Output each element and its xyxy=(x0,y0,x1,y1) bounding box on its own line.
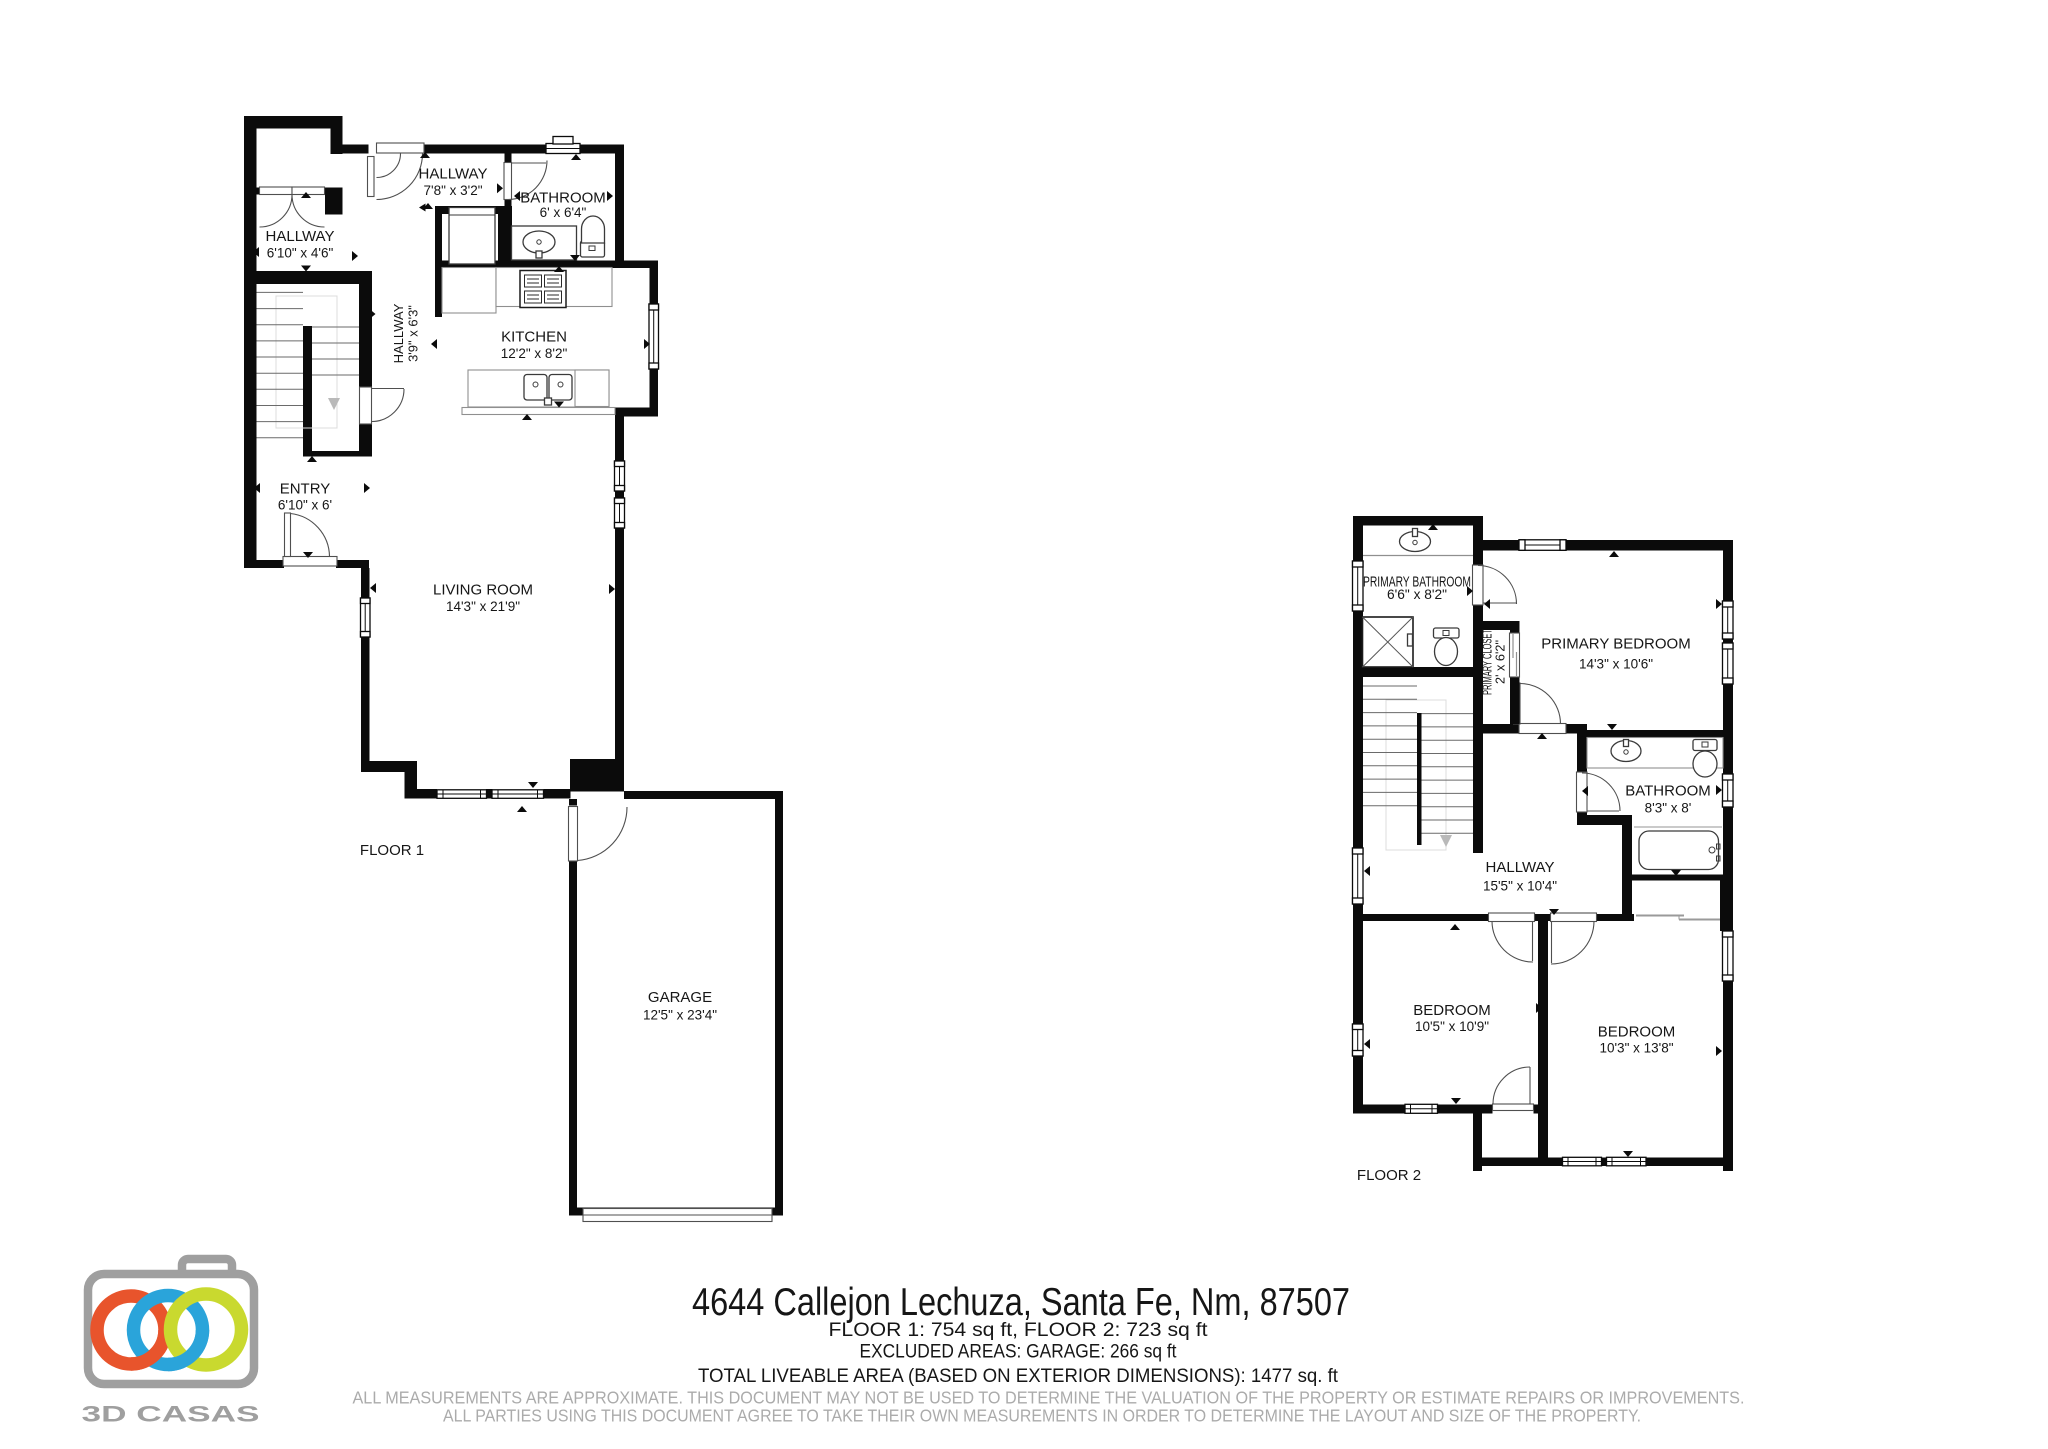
svg-text:BEDROOM: BEDROOM xyxy=(1598,1024,1676,1041)
svg-text:3'9" x 6'3": 3'9" x 6'3" xyxy=(406,305,421,362)
svg-text:FLOOR 1: 754 sq ft, FLOOR 2: 7: FLOOR 1: 754 sq ft, FLOOR 2: 723 sq ft xyxy=(829,1320,1209,1341)
svg-text:BEDROOM: BEDROOM xyxy=(1413,1002,1491,1019)
svg-text:PRIMARY BEDROOM: PRIMARY BEDROOM xyxy=(1541,636,1690,653)
svg-text:15'5" x 10'4": 15'5" x 10'4" xyxy=(1483,879,1557,894)
svg-text:BATHROOM: BATHROOM xyxy=(1625,783,1711,800)
svg-text:HALLWAY: HALLWAY xyxy=(266,228,335,245)
svg-text:GARAGE: GARAGE xyxy=(648,989,712,1006)
svg-text:ENTRY: ENTRY xyxy=(280,481,331,498)
svg-text:ALL PARTIES USING THIS DOCUMEN: ALL PARTIES USING THIS DOCUMENT AGREE TO… xyxy=(443,1406,1641,1426)
svg-text:6'6" x 8'2": 6'6" x 8'2" xyxy=(1387,587,1447,602)
svg-text:10'5" x 10'9": 10'5" x 10'9" xyxy=(1415,1019,1489,1034)
svg-text:2' x 6'2": 2' x 6'2" xyxy=(1493,640,1508,684)
svg-text:FLOOR 1: FLOOR 1 xyxy=(360,842,424,859)
svg-text:12'2" x 8'2": 12'2" x 8'2" xyxy=(501,346,568,361)
svg-text:ALL MEASUREMENTS ARE APPROXIMA: ALL MEASUREMENTS ARE APPROXIMATE. THIS D… xyxy=(353,1388,1745,1408)
svg-text:6'10" x 4'6": 6'10" x 4'6" xyxy=(267,246,334,261)
svg-text:4644 Callejon Lechuza, Santa F: 4644 Callejon Lechuza, Santa Fe, Nm, 875… xyxy=(692,1281,1350,1324)
svg-text:EXCLUDED AREAS: GARAGE: 266 sq: EXCLUDED AREAS: GARAGE: 266 sq ft xyxy=(860,1342,1178,1363)
svg-text:KITCHEN: KITCHEN xyxy=(501,329,567,346)
svg-text:6'10" x 6': 6'10" x 6' xyxy=(278,498,332,513)
svg-text:14'3" x 10'6": 14'3" x 10'6" xyxy=(1579,657,1653,672)
svg-text:6' x 6'4": 6' x 6'4" xyxy=(540,205,587,220)
svg-text:BATHROOM: BATHROOM xyxy=(520,190,606,207)
svg-text:FLOOR 2: FLOOR 2 xyxy=(1357,1167,1421,1184)
svg-text:TOTAL LIVEABLE AREA (BASED ON: TOTAL LIVEABLE AREA (BASED ON EXTERIOR D… xyxy=(698,1366,1339,1387)
svg-text:12'5" x 23'4": 12'5" x 23'4" xyxy=(643,1008,717,1023)
svg-text:7'8" x 3'2": 7'8" x 3'2" xyxy=(423,183,482,198)
svg-text:HALLWAY: HALLWAY xyxy=(391,303,406,363)
svg-text:3D CASAS: 3D CASAS xyxy=(82,1402,260,1427)
svg-text:HALLWAY: HALLWAY xyxy=(419,166,488,183)
svg-text:8'3" x 8': 8'3" x 8' xyxy=(1645,801,1692,816)
svg-text:LIVING ROOM: LIVING ROOM xyxy=(433,582,533,599)
svg-text:10'3" x 13'8": 10'3" x 13'8" xyxy=(1599,1041,1673,1056)
svg-text:HALLWAY: HALLWAY xyxy=(1486,859,1555,876)
svg-text:14'3" x 21'9": 14'3" x 21'9" xyxy=(446,599,520,614)
